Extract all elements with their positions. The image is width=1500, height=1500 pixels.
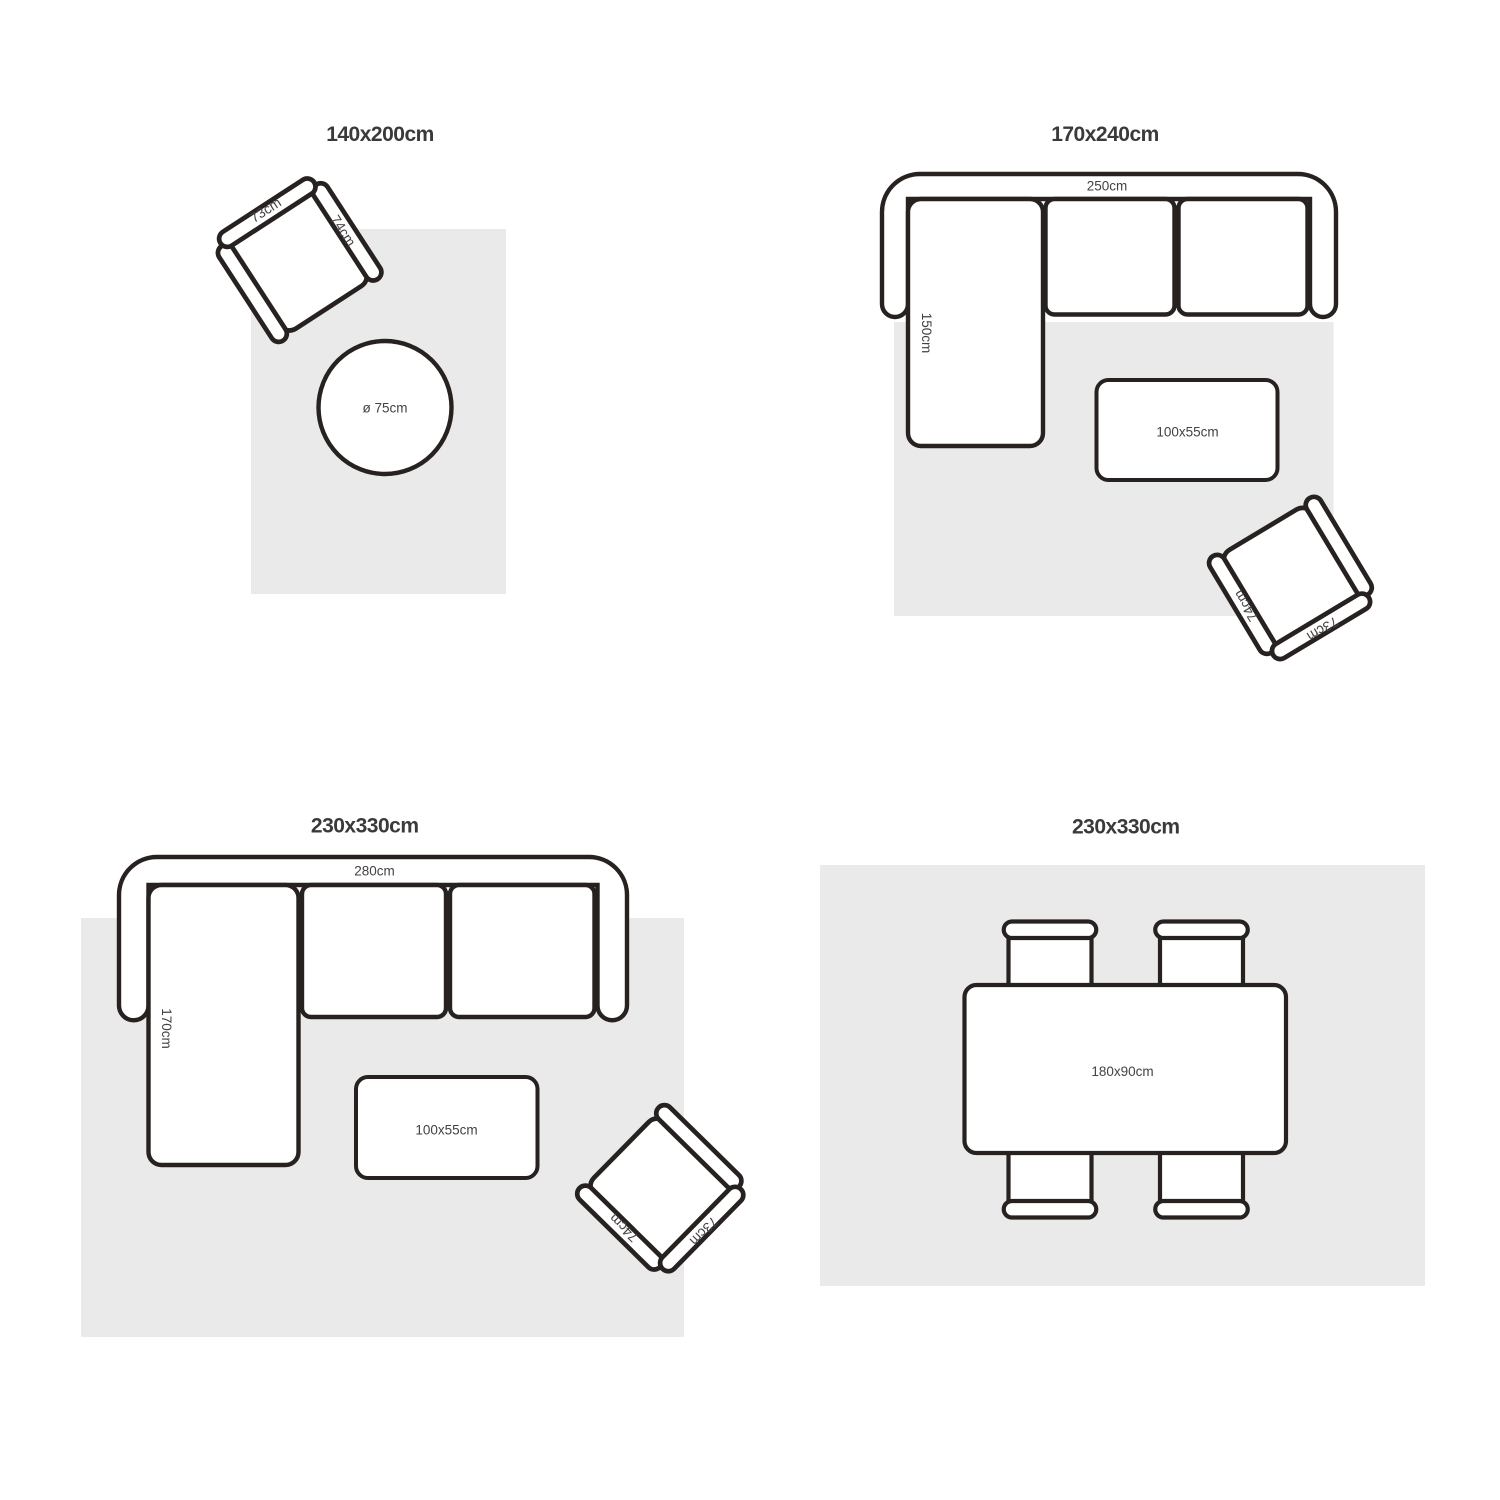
svg-text:140x200cm: 140x200cm [326,123,434,146]
svg-text:230x330cm: 230x330cm [1072,816,1180,839]
svg-text:ø 75cm: ø 75cm [362,401,407,416]
svg-text:100x55cm: 100x55cm [415,1123,477,1138]
svg-text:170cm: 170cm [159,1008,174,1049]
svg-text:280cm: 280cm [354,864,395,879]
svg-text:150cm: 150cm [919,313,934,354]
svg-text:170x240cm: 170x240cm [1051,123,1159,146]
svg-text:100x55cm: 100x55cm [1156,425,1218,440]
svg-text:180x90cm: 180x90cm [1091,1064,1153,1079]
svg-text:230x330cm: 230x330cm [311,815,419,838]
svg-text:250cm: 250cm [1087,179,1128,194]
